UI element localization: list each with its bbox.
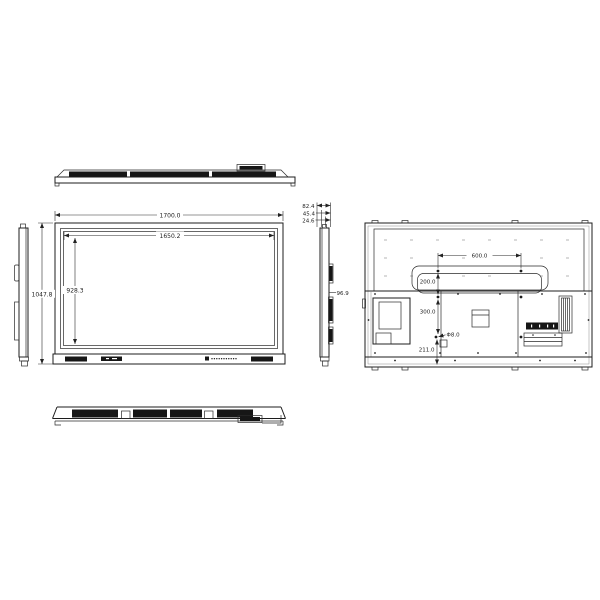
dim-overall-width: 1700.0	[55, 211, 283, 221]
bottom-grille	[72, 410, 118, 418]
speaker-grille-left	[65, 357, 87, 362]
ops-box	[376, 333, 391, 344]
dim-label-active-height: 928.3	[66, 288, 83, 295]
label-plate	[472, 310, 489, 327]
dim-label-active-width: 1650.2	[160, 233, 181, 240]
dim-depth-stack: 82.4 45.4 24.6	[302, 203, 330, 228]
vesa-hole	[520, 270, 523, 273]
dim-label-hole-diameter: Φ8.0	[447, 333, 461, 339]
bottom-grille	[217, 410, 253, 418]
top-view	[55, 165, 295, 187]
screw-boss	[122, 411, 131, 419]
top-trim-strip	[69, 172, 276, 177]
left-side-view	[15, 224, 29, 366]
dim-label-depth-front: 24.6	[302, 219, 315, 225]
bottom-view	[53, 407, 286, 425]
vesa-holes	[435, 270, 523, 339]
ops-slot	[373, 298, 410, 344]
camera-bump	[15, 265, 20, 281]
dim-label-hole-offset-top: 200.0	[420, 280, 436, 286]
vesa-hole	[437, 270, 440, 273]
end-hooks	[55, 421, 283, 425]
screw-boss	[205, 411, 214, 419]
technical-drawing-canvas: 1700.0 1650.2 1047.8 928.3	[0, 0, 600, 600]
ir-sensor	[205, 357, 209, 361]
dim-bracket-depth: 96.9	[329, 291, 349, 297]
dim-vesa-height: 300.0	[420, 300, 438, 335]
dim-hole-diameter: Φ8.0	[439, 333, 461, 339]
display-area	[64, 232, 275, 346]
dim-active-width: 1650.2	[64, 231, 274, 240]
dim-active-height: 928.3	[61, 238, 89, 344]
front-outer-frame	[55, 223, 283, 354]
port-dots	[211, 358, 236, 359]
left-side-body	[19, 228, 28, 357]
display-frame	[61, 229, 278, 349]
back-view	[363, 221, 593, 371]
bottom-grille	[133, 410, 167, 418]
top-base-bar	[55, 177, 295, 183]
bottom-grille	[170, 410, 202, 418]
right-foot	[323, 361, 329, 366]
dim-label-depth-total: 82.4	[302, 204, 315, 210]
dim-label-depth-mid: 45.4	[303, 212, 316, 218]
ops-slot-inner	[379, 302, 401, 329]
dim-label-overall-width: 1700.0	[160, 212, 181, 219]
vesa-hole	[520, 336, 523, 339]
technical-drawing-page: 1700.0 1650.2 1047.8 928.3	[0, 0, 600, 600]
vesa-hole	[435, 336, 438, 339]
vesa-hole	[520, 296, 523, 299]
back-top-cover	[374, 229, 584, 291]
side-module	[15, 302, 20, 340]
dim-hole-offset-bottom: 211.0	[419, 340, 437, 365]
dim-label-vesa-width: 600.0	[472, 254, 488, 260]
dim-label-hole-offset-bottom: 211.0	[419, 348, 435, 354]
vesa-plate-outer	[412, 266, 548, 290]
io-panel	[524, 333, 562, 346]
right-side-view	[320, 225, 333, 367]
control-panel	[101, 357, 122, 362]
bottom-bezel	[53, 354, 285, 364]
back-outer-frame	[365, 223, 592, 367]
right-side-body	[320, 228, 329, 357]
dim-label-vesa-height: 300.0	[420, 310, 436, 316]
left-foot	[22, 361, 28, 366]
dim-overall-height: 1047.8	[29, 223, 55, 364]
dim-label-bracket-depth: 96.9	[337, 291, 350, 297]
vesa-hole	[437, 296, 440, 299]
dim-label-overall-height: 1047.8	[32, 291, 53, 298]
speaker-grille-right	[251, 357, 273, 362]
